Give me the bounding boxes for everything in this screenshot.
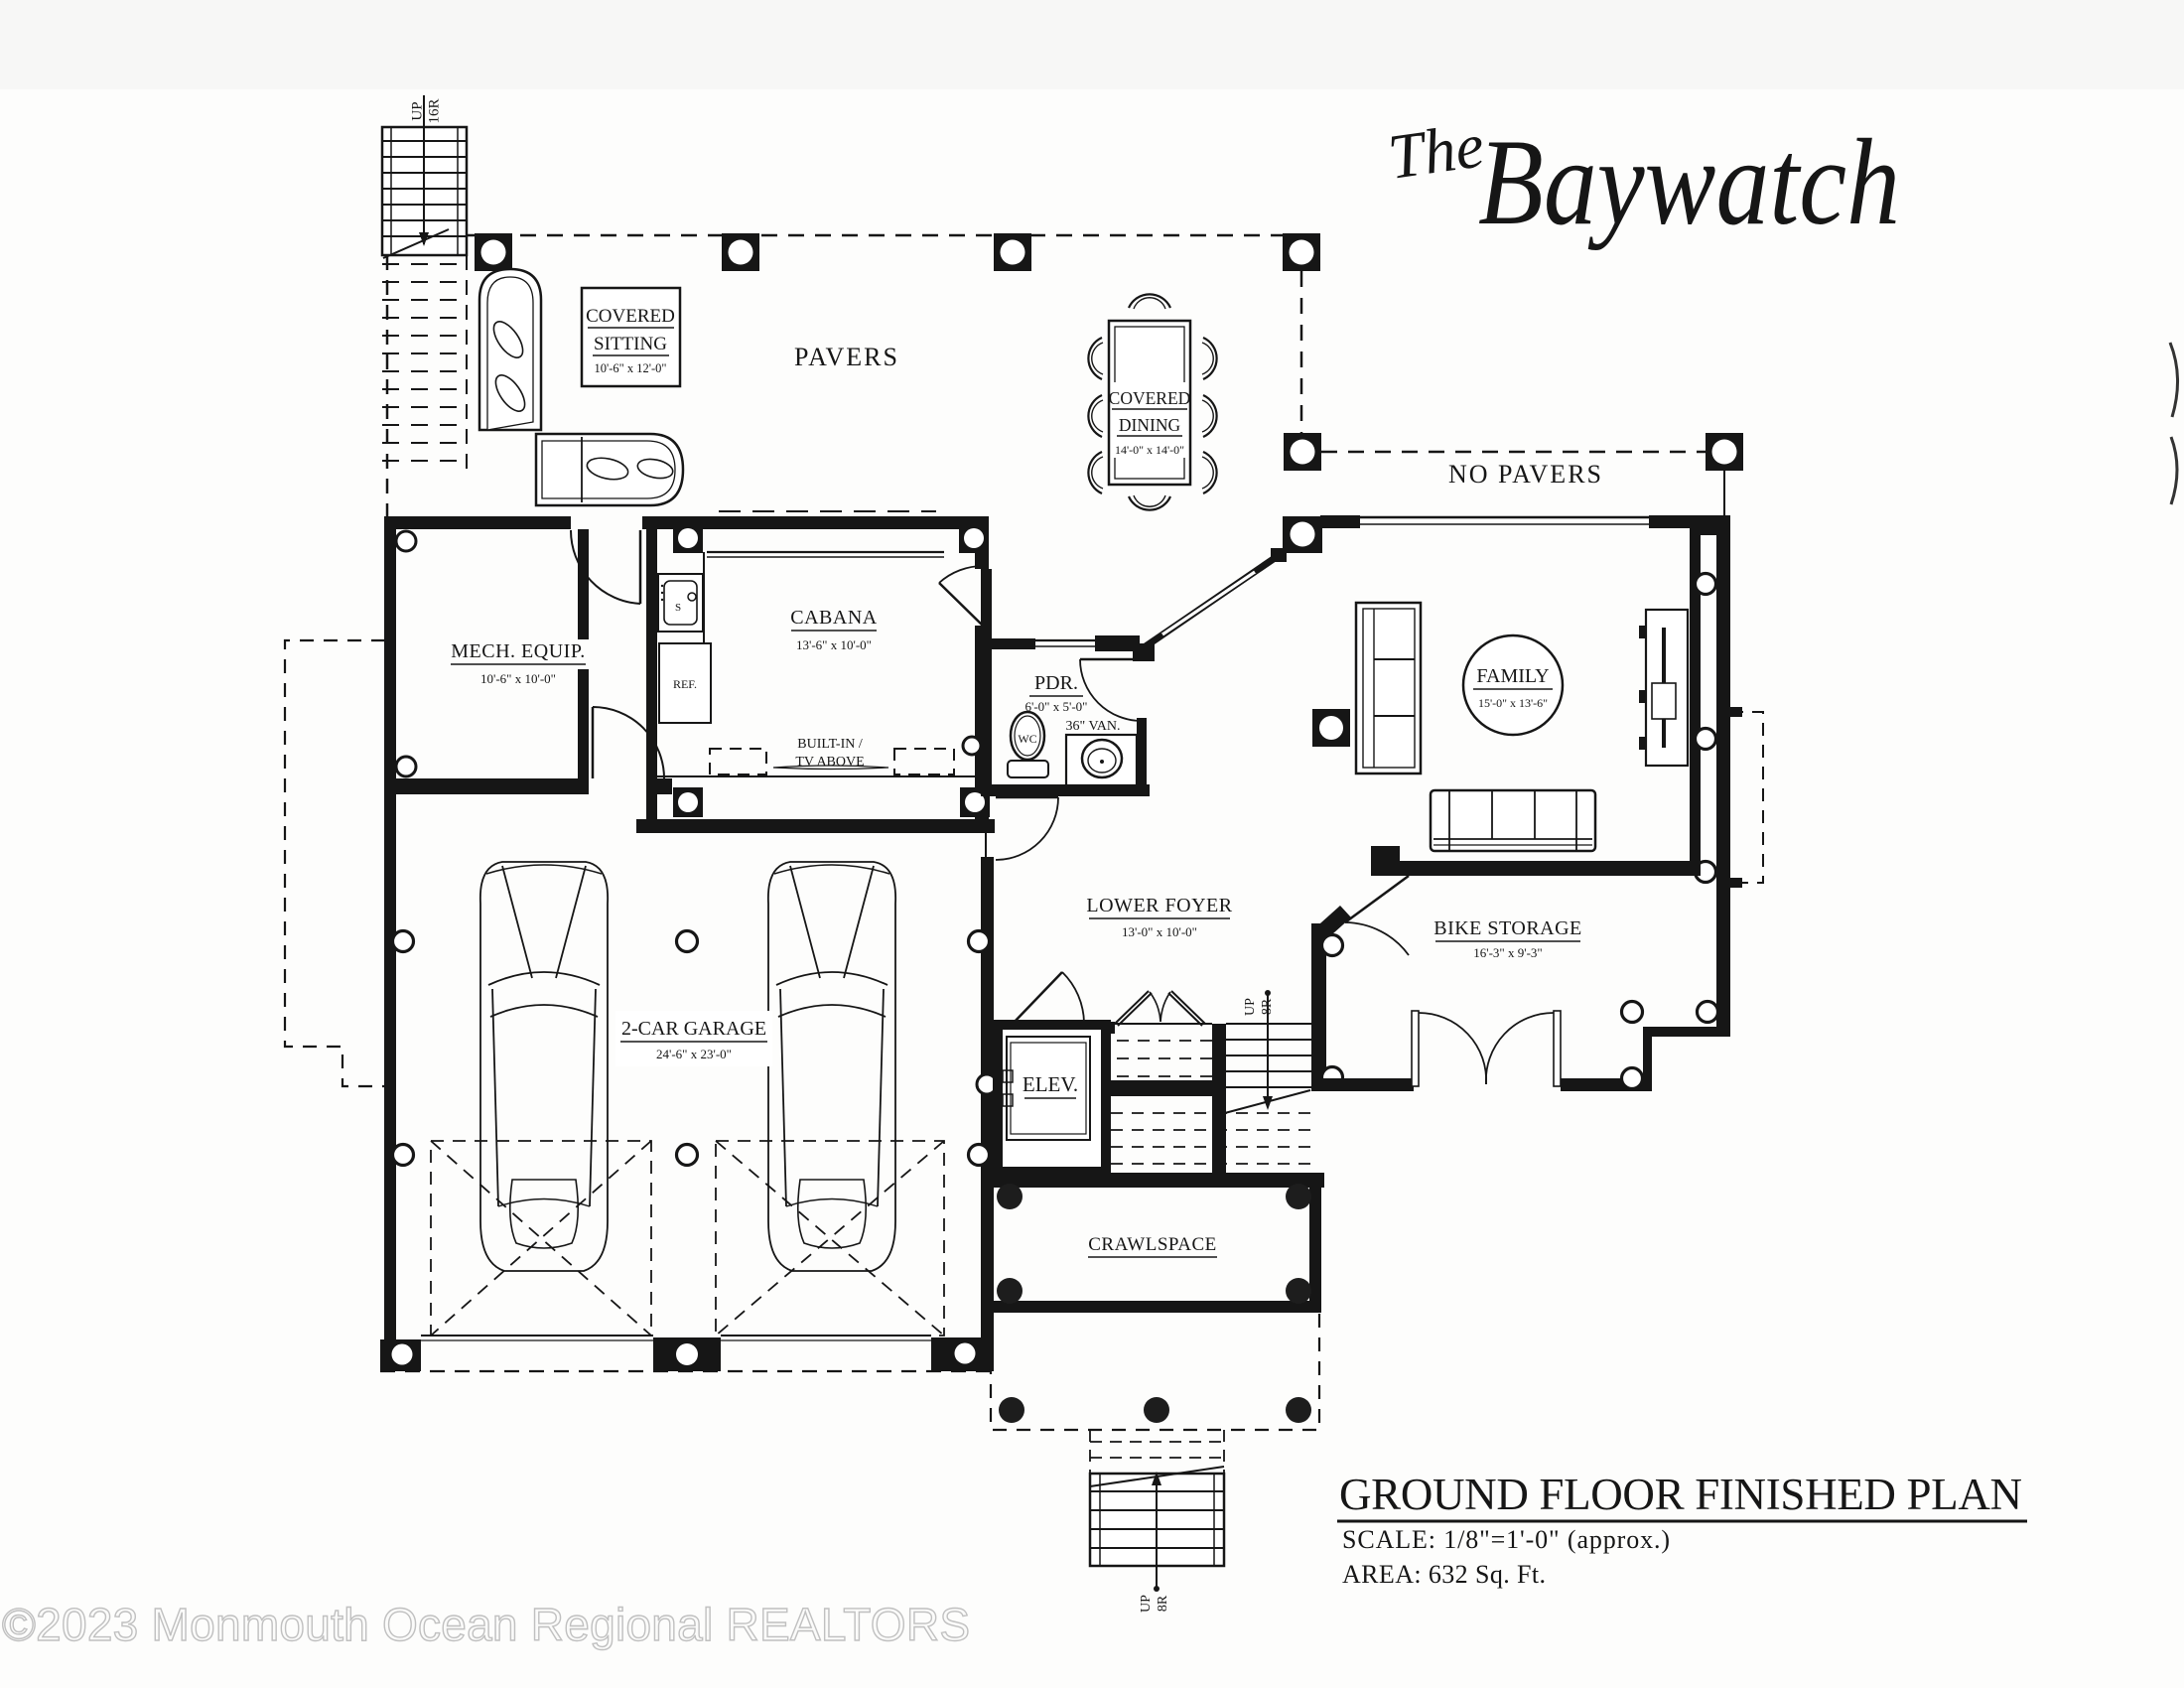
svg-text:CRAWLSPACE: CRAWLSPACE	[1088, 1234, 1216, 1255]
svg-text:AREA: 632 Sq. Ft.: AREA: 632 Sq. Ft.	[1342, 1560, 1546, 1589]
svg-text:SCALE: 1/8"=1'-0" (approx.): SCALE: 1/8"=1'-0" (approx.)	[1342, 1525, 1670, 1554]
svg-text:BUILT-IN /: BUILT-IN /	[797, 737, 863, 752]
svg-text:WC: WC	[1018, 732, 1036, 746]
svg-text:2-CAR GARAGE: 2-CAR GARAGE	[621, 1018, 766, 1040]
svg-text:ELEV.: ELEV.	[1023, 1072, 1078, 1096]
svg-text:13'-6" x 10'-0": 13'-6" x 10'-0"	[796, 637, 872, 652]
svg-text:10'-6" x 12'-0": 10'-6" x 12'-0"	[594, 361, 666, 375]
svg-text:16R: 16R	[426, 98, 442, 123]
svg-text:14'-0" x 14'-0": 14'-0" x 14'-0"	[1115, 443, 1184, 457]
svg-text:LOWER FOYER: LOWER FOYER	[1086, 895, 1232, 916]
svg-text:COVERED: COVERED	[1109, 388, 1191, 408]
svg-text:The: The	[1384, 109, 1488, 193]
svg-text:Baywatch: Baywatch	[1478, 114, 1900, 250]
svg-text:TV ABOVE: TV ABOVE	[795, 755, 864, 770]
svg-text:36" VAN.: 36" VAN.	[1066, 719, 1121, 734]
svg-text:MECH. EQUIP.: MECH. EQUIP.	[451, 640, 585, 662]
svg-text:6'-0" x 5'-0": 6'-0" x 5'-0"	[1025, 699, 1088, 714]
svg-text:UP: UP	[409, 101, 425, 120]
svg-text:GROUND FLOOR FINISHED PLAN: GROUND FLOOR FINISHED PLAN	[1339, 1470, 2022, 1519]
svg-text:BIKE STORAGE: BIKE STORAGE	[1433, 917, 1582, 939]
svg-text:8R: 8R	[1260, 998, 1275, 1015]
svg-text:16'-3" x 9'-3": 16'-3" x 9'-3"	[1473, 945, 1542, 960]
svg-text:©2023 Monmouth Ocean Regional: ©2023 Monmouth Ocean Regional REALTORS	[2, 1599, 970, 1650]
svg-text:NO PAVERS: NO PAVERS	[1448, 460, 1603, 489]
svg-text:DINING: DINING	[1119, 415, 1181, 435]
svg-text:PAVERS: PAVERS	[794, 343, 899, 371]
svg-text:REF.: REF.	[673, 677, 697, 691]
svg-text:PDR.: PDR.	[1034, 672, 1078, 694]
svg-text:UP: UP	[1139, 1595, 1154, 1613]
svg-text:24'-6" x 23'-0": 24'-6" x 23'-0"	[656, 1047, 732, 1061]
svg-text:8R: 8R	[1156, 1595, 1170, 1612]
svg-text:S: S	[675, 602, 681, 614]
svg-text:SITTING: SITTING	[594, 334, 667, 354]
svg-text:FAMILY: FAMILY	[1476, 665, 1549, 687]
svg-text:13'-0" x 10'-0": 13'-0" x 10'-0"	[1122, 924, 1197, 939]
svg-text:10'-6" x 10'-0": 10'-6" x 10'-0"	[480, 671, 556, 686]
svg-text:CABANA: CABANA	[790, 607, 878, 629]
svg-text:UP: UP	[1243, 998, 1258, 1016]
svg-text:COVERED: COVERED	[586, 306, 675, 327]
svg-text:15'-0" x 13'-6": 15'-0" x 13'-6"	[1478, 696, 1548, 710]
